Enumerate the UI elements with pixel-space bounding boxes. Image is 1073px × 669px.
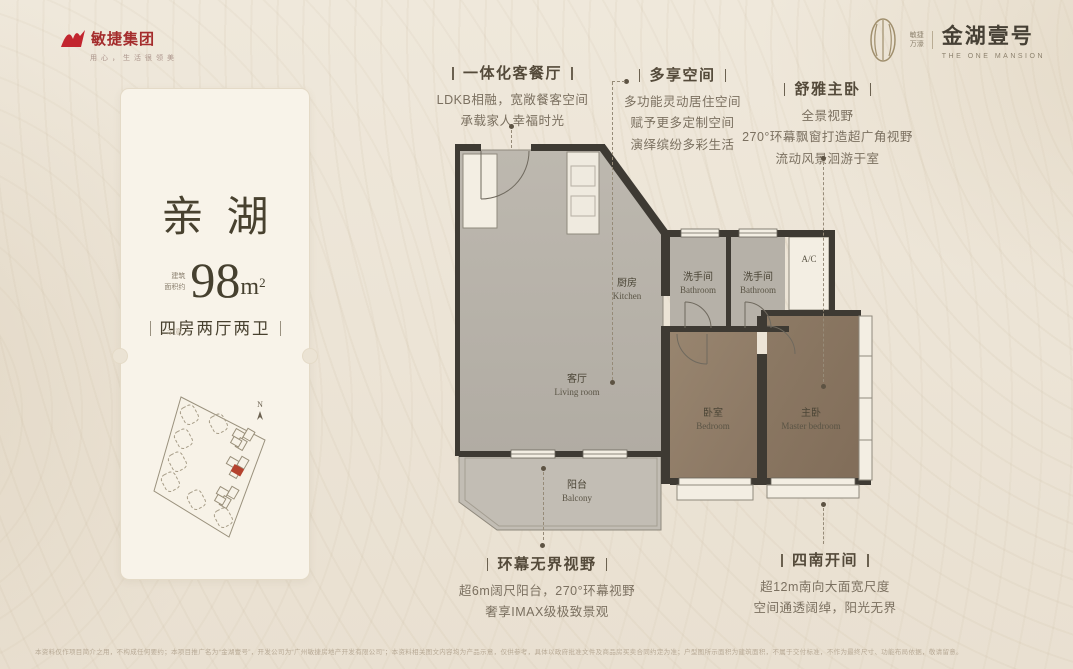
area-prefix-line1: 建筑 xyxy=(164,272,185,283)
project-developer-line1: 敏捷 xyxy=(910,31,924,40)
area-superscript: 2 xyxy=(259,275,266,291)
project-emblem-icon xyxy=(865,16,901,64)
site-plan: N xyxy=(139,383,293,553)
annotation-line: 全景视野 xyxy=(730,106,925,127)
area-unit: m xyxy=(240,274,259,301)
leader-line xyxy=(612,81,625,82)
annotation-line: 超12m南向大面宽尺度 xyxy=(730,577,920,598)
room-label-kitchen-en: Kitchen xyxy=(613,291,642,301)
room-label-master-en: Master bedroom xyxy=(781,421,840,431)
project-logo: 敏捷 万濠 金湖壹号 THE ONE MANSION xyxy=(865,16,1045,64)
annotation-balcony-view: 环幕无界视野 超6m阔尺阳台，270°环幕视野 奢享IMAX级极致景观 xyxy=(452,553,642,624)
annotation-title: 舒雅主卧 xyxy=(730,78,925,99)
leader-line xyxy=(612,82,613,380)
room-label-bedroom-en: Bedroom xyxy=(696,421,730,431)
area-value: 98 xyxy=(190,258,240,303)
unit-info-card: 亲湖 建筑 面积约 98 m 2 四房两厅两卫 示意 xyxy=(120,88,310,580)
room-label-balcony-zh: 阳台 xyxy=(567,478,587,491)
leader-dot xyxy=(821,156,826,161)
room-label-master-zh: 主卧 xyxy=(801,406,821,419)
room-label-ac: A/C xyxy=(801,254,816,264)
project-subtitle: THE ONE MANSION xyxy=(942,53,1045,60)
room-label-bath2-en: Bathroom xyxy=(740,285,776,295)
annotation-line: 承载家人幸福时光 xyxy=(420,111,605,132)
room-label-balcony-en: Balcony xyxy=(562,493,592,503)
project-developer: 敏捷 万濠 xyxy=(910,31,933,50)
compass-arrow-icon xyxy=(257,411,263,420)
annotation-south-bays: 四南开间 超12m南向大面宽尺度 空间通透阔绰，阳光无界 xyxy=(730,549,920,620)
annotation-master-bedroom: 舒雅主卧 全景视野 270°环幕飘窗打造超广角视野 流动风景洄游于室 xyxy=(730,78,925,170)
project-name: 金湖壹号 xyxy=(942,20,1045,50)
room-label-bath2-zh: 洗手间 xyxy=(743,270,773,283)
card-notch-left xyxy=(112,348,128,364)
leader-dot xyxy=(821,502,826,507)
annotation-line: 空间通透阔绰，阳光无界 xyxy=(730,598,920,619)
compass-n-label: N xyxy=(257,400,263,409)
plan-floors xyxy=(459,150,859,530)
group-logo: 敏捷集团 用心，生活很领美 xyxy=(60,28,178,63)
site-boundary xyxy=(154,397,265,537)
annotation-title: 一体化客餐厅 xyxy=(420,62,605,83)
leader-dot xyxy=(509,124,514,129)
project-developer-line2: 万濠 xyxy=(910,40,924,49)
annotation-line: 流动风景洄游于室 xyxy=(730,149,925,170)
annotation-title: 环幕无界视野 xyxy=(452,553,642,574)
annotation-line: 270°环幕飘窗打造超广角视野 xyxy=(730,127,925,148)
room-label-living-zh: 客厅 xyxy=(567,372,587,385)
room-label-kitchen-zh: 厨房 xyxy=(617,276,637,289)
unit-layout: 四房两厅两卫 xyxy=(121,315,309,339)
leader-dot xyxy=(541,466,546,471)
annotation-line: 超6m阔尺阳台，270°环幕视野 xyxy=(452,581,642,602)
group-logo-slogan: 用心，生活很领美 xyxy=(90,53,178,63)
unit-name: 亲湖 xyxy=(121,183,309,244)
poster: 敏捷集团 用心，生活很领美 敏捷 万濠 金湖壹号 THE ONE MANSION… xyxy=(0,0,1073,669)
leader-dot xyxy=(540,543,545,548)
unit-layout-note: 示意 xyxy=(167,327,183,337)
room-label-bath1-en: Bathroom xyxy=(680,285,716,295)
group-logo-name: 敏捷集团 xyxy=(91,28,155,49)
room-label-living-en: Living room xyxy=(554,387,599,397)
group-logo-icon xyxy=(60,29,86,49)
area-prefix-line2: 面积约 xyxy=(164,283,185,294)
annotation-living-dining: 一体化客餐厅 LDKB相融，宽敞餐客空间 承载家人幸福时光 xyxy=(420,62,605,133)
disclaimer-text: 本资料仅作项目简介之用，不构成任何要约；本项目推广名为“金湖壹号”，开发公司为“… xyxy=(35,646,1043,656)
annotation-line: LDKB相融，宽敞餐客空间 xyxy=(420,90,605,111)
card-notch-right xyxy=(302,348,318,364)
leader-line xyxy=(543,472,544,540)
annotation-line: 奢享IMAX级极致景观 xyxy=(452,602,642,623)
area-prefix: 建筑 面积约 xyxy=(164,272,185,293)
unit-area: 建筑 面积约 98 m 2 xyxy=(121,258,309,303)
floor-plan: 厨房 Kitchen 洗手间 Bathroom 洗手间 Bathroom A/C… xyxy=(455,140,875,542)
leader-dot xyxy=(610,380,615,385)
leader-line xyxy=(823,508,824,544)
leader-line xyxy=(823,162,824,382)
leader-dot xyxy=(821,384,826,389)
leader-line xyxy=(511,130,512,148)
room-label-bedroom-zh: 卧室 xyxy=(703,406,723,419)
annotation-title: 四南开间 xyxy=(730,549,920,570)
room-label-bath1-zh: 洗手间 xyxy=(683,270,713,283)
